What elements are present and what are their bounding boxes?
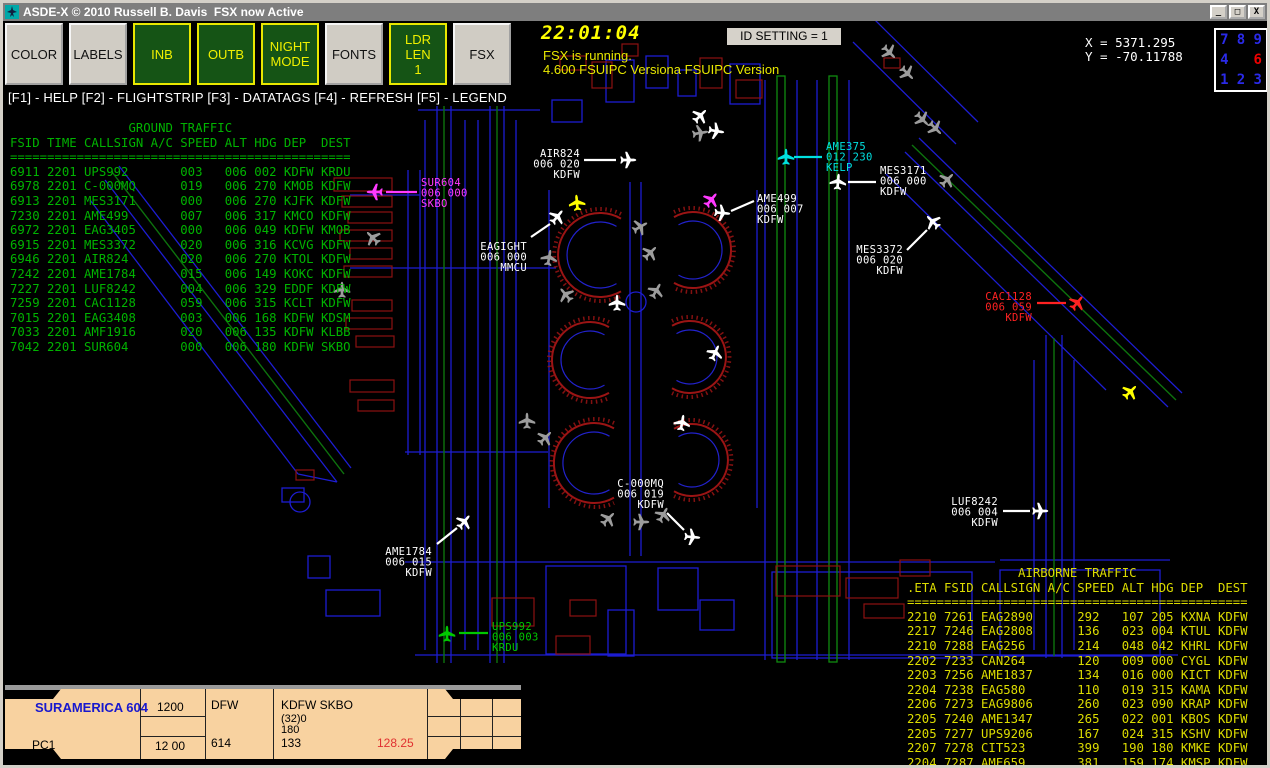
x-coordinate: X = 5371.295 <box>1085 35 1175 50</box>
toolbar-button-fsx[interactable]: FSX <box>453 23 511 85</box>
aircraft-icon[interactable] <box>645 280 667 302</box>
strip-divider <box>427 716 521 717</box>
datatag-leader-line <box>667 513 684 530</box>
fsx-status-text: FSX is running. <box>543 48 632 63</box>
datatag-leader-line <box>731 201 754 211</box>
datatag-leader-line <box>531 224 550 237</box>
toolbar-button-fonts[interactable]: FONTS <box>325 23 383 85</box>
flight-strip[interactable]: SURAMERICA 604 PC1 1200 12 00 DFW 614 KD… <box>5 689 521 759</box>
minimize-button[interactable]: _ <box>1210 5 1227 19</box>
datatag-ame375[interactable]: AME375012 230KELP <box>826 141 873 174</box>
datatag-eagight[interactable]: EAGIGHT006 000MMCU <box>480 241 527 274</box>
datatag-c-000mq[interactable]: C-000MQ006 019KDFW <box>617 478 664 511</box>
id-setting-chip: ID SETTING = 1 <box>727 28 841 45</box>
strip-number: 614 <box>211 736 231 750</box>
toolbar-button-labels[interactable]: LABELS <box>69 23 127 85</box>
datatag-cac1128[interactable]: CAC1128006 059KDFW <box>985 291 1032 324</box>
app-icon <box>5 5 19 19</box>
strip-divider <box>140 736 205 737</box>
aircraft-icon[interactable] <box>691 123 710 142</box>
client-area: AIR824006 020KDFWAME375012 230KELPMES317… <box>3 21 1267 765</box>
aircraft-icon[interactable] <box>778 149 795 165</box>
strip-divider <box>140 716 205 717</box>
numpad-key-2[interactable]: 2 <box>1233 72 1250 88</box>
close-button[interactable]: X <box>1248 5 1265 19</box>
aircraft-icon[interactable] <box>829 173 847 190</box>
aircraft-icon[interactable] <box>568 194 586 211</box>
toolbar-button-ldr-len-1[interactable]: LDR LEN 1 <box>389 23 447 85</box>
toolbar: COLORLABELSINBOUTBNIGHT MODEFONTSLDR LEN… <box>5 23 511 85</box>
aircraft-icon[interactable] <box>639 241 662 264</box>
aircraft-icon[interactable] <box>620 152 636 169</box>
aircraft-icon[interactable] <box>439 626 456 642</box>
toolbar-button-night-mode[interactable]: NIGHT MODE <box>261 23 319 85</box>
datatag-leader-line <box>437 528 457 544</box>
aircraft-icon[interactable] <box>896 62 919 85</box>
aircraft-icon[interactable] <box>684 528 701 546</box>
asdex-window: ASDE-X © 2010 Russell B. Davis FSX now A… <box>0 0 1270 768</box>
clock-display: 22:01:04 <box>541 22 641 44</box>
aircraft-icon[interactable] <box>673 413 692 432</box>
aircraft-icon[interactable] <box>700 188 723 211</box>
strip-squawk-2: 12 00 <box>155 739 185 753</box>
datatag-mes3171[interactable]: MES3171006 000KDFW <box>880 165 927 198</box>
window-title: ASDE-X © 2010 Russell B. Davis FSX now A… <box>23 3 1208 21</box>
strip-divider <box>205 689 206 759</box>
maximize-button[interactable]: □ <box>1229 5 1246 19</box>
cursor-coordinates: X = 5371.295 Y = -70.11788 <box>1085 36 1183 64</box>
aircraft-icon[interactable] <box>367 184 383 201</box>
aircraft-icon[interactable] <box>878 41 901 64</box>
numpad-key-1[interactable]: 1 <box>1216 72 1233 88</box>
strip-squawk: 1200 <box>157 700 184 714</box>
aircraft-icon[interactable] <box>540 248 559 267</box>
aircraft-icon[interactable] <box>629 216 651 238</box>
numpad-key-9[interactable]: 9 <box>1249 32 1266 48</box>
strip-divider <box>427 689 428 759</box>
strip-route: KDFW SKBO <box>281 698 353 712</box>
aircraft-icon[interactable] <box>633 514 649 531</box>
toolbar-button-inb[interactable]: INB <box>133 23 191 85</box>
aircraft-icon[interactable] <box>597 507 620 530</box>
numpad-key-8[interactable]: 8 <box>1233 32 1250 48</box>
numpad-key-7[interactable]: 7 <box>1216 32 1233 48</box>
aircraft-icon[interactable] <box>609 295 626 311</box>
ground-traffic-table: GROUND TRAFFIC FSID TIME CALLSIGN A/C SP… <box>10 121 351 355</box>
strip-divider <box>492 689 493 759</box>
strip-divider <box>427 736 521 737</box>
datatag-leader-line <box>907 230 927 250</box>
numpad-key-6[interactable]: 6 <box>1249 52 1266 68</box>
datatag-air824[interactable]: AIR824006 020KDFW <box>533 148 580 181</box>
aircraft-icon[interactable] <box>689 104 712 127</box>
numpad-key-3[interactable]: 3 <box>1249 72 1266 88</box>
y-coordinate: Y = -70.11788 <box>1085 49 1183 64</box>
datatag-mes3372[interactable]: MES3372006 020KDFW <box>856 244 903 277</box>
datatag-luf8242[interactable]: LUF8242006 004KDFW <box>951 496 998 529</box>
id-numpad: 78946123 <box>1214 28 1267 92</box>
datatag-sur604[interactable]: SUR604006 000SKBO <box>421 177 468 210</box>
airborne-traffic-table: AIRBORNE TRAFFIC .ETA FSID CALLSIGN A/C … <box>907 566 1248 765</box>
numpad-key-4[interactable]: 4 <box>1216 52 1233 68</box>
aircraft-icon[interactable] <box>1119 380 1142 403</box>
strip-alt2: 180 <box>281 724 299 736</box>
strip-frequency: 128.25 <box>377 736 414 750</box>
strip-alt3: 133 <box>281 736 301 750</box>
aircraft-icon[interactable] <box>704 342 726 363</box>
strip-divider <box>273 689 274 759</box>
aircraft-icon[interactable] <box>707 122 726 141</box>
strip-divider <box>460 689 461 759</box>
function-key-bar: [F1] - HELP [F2] - FLIGHTSTRIP [F3] - DA… <box>8 90 507 105</box>
toolbar-button-color[interactable]: COLOR <box>5 23 63 85</box>
aircraft-icon[interactable] <box>921 210 944 233</box>
aircraft-icon[interactable] <box>924 117 947 140</box>
aircraft-layer <box>334 41 1142 642</box>
datatag-ame1784[interactable]: AME1784006 015KDFW <box>385 546 432 579</box>
strip-callsign: SURAMERICA 604 <box>35 700 148 715</box>
titlebar: ASDE-X © 2010 Russell B. Davis FSX now A… <box>3 3 1267 21</box>
strip-dep-code: DFW <box>211 698 238 712</box>
aircraft-icon[interactable] <box>519 413 536 429</box>
fsuipc-version-text: 4.600 FSUIPC Versiona FSUIPC Version <box>543 62 779 77</box>
datatag-ups992[interactable]: UPS992006 003KRDU <box>492 621 539 654</box>
toolbar-button-outb[interactable]: OUTB <box>197 23 255 85</box>
